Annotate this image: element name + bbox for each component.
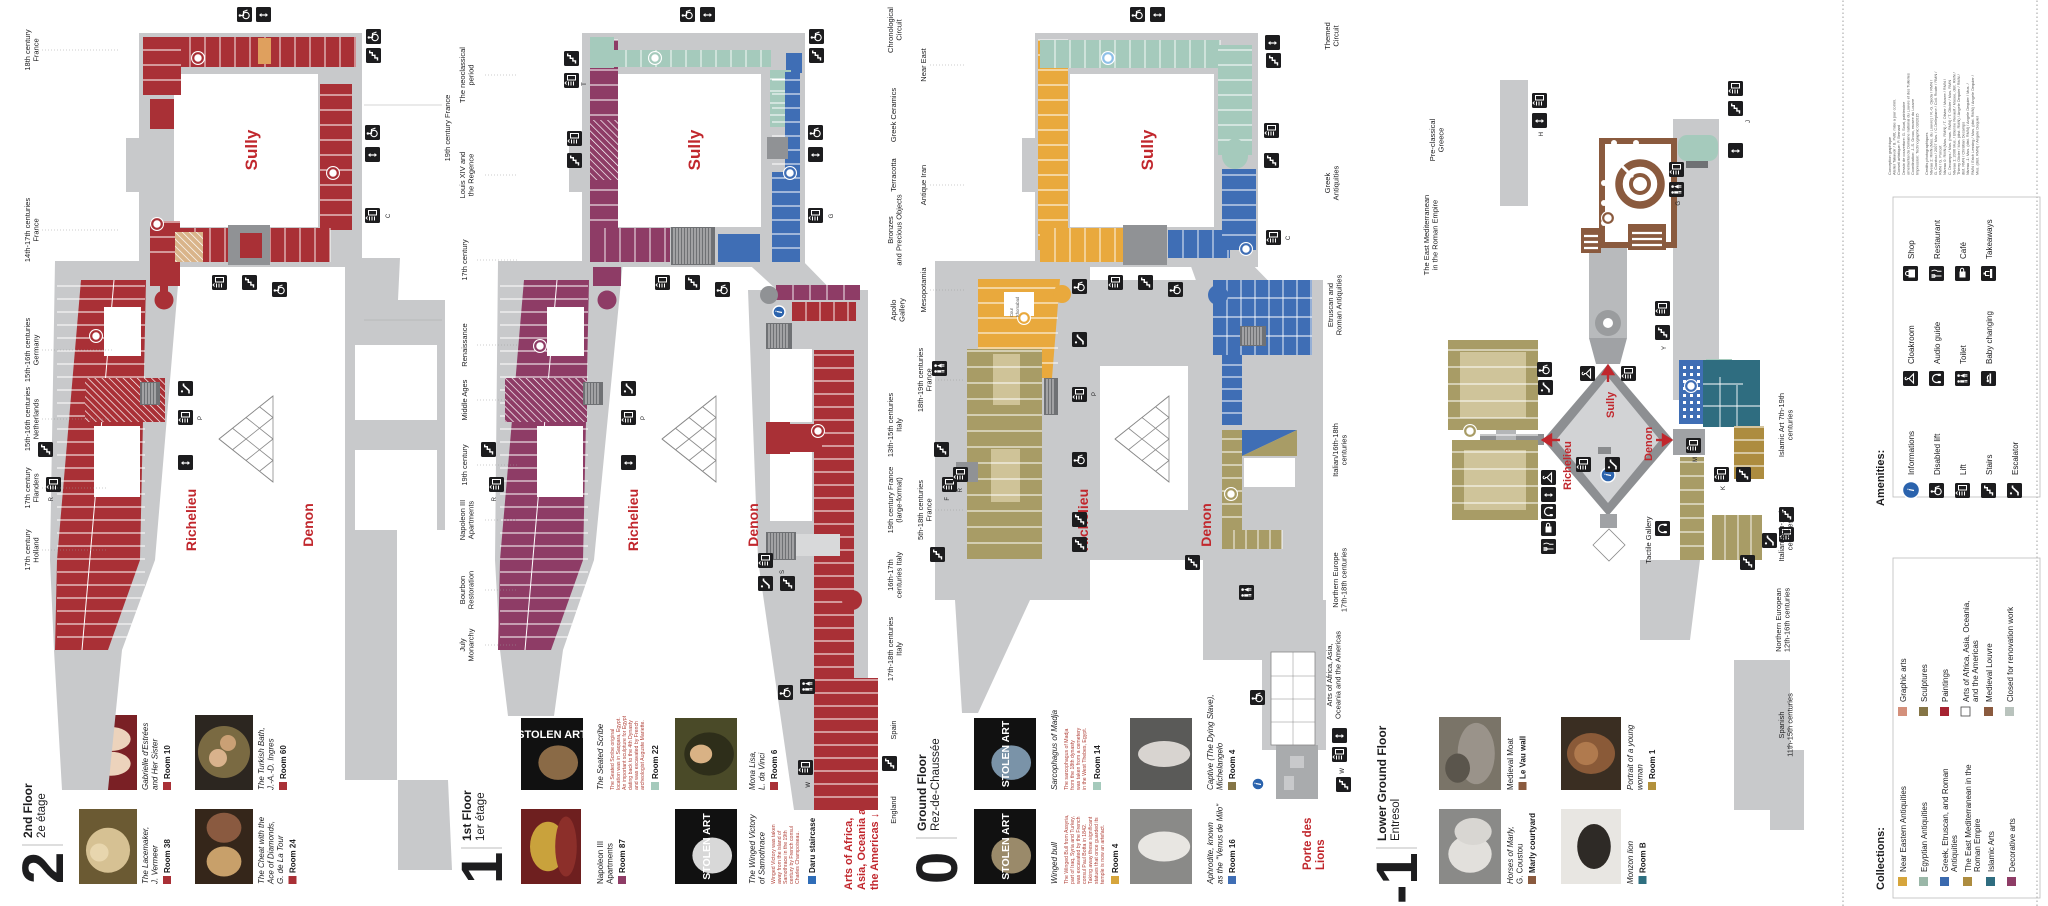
svg-text:Sculptures: Sculptures	[1920, 664, 1929, 702]
svg-text:R: R	[49, 496, 55, 501]
svg-text:Room 16: Room 16	[1228, 839, 1237, 873]
svg-text:R: R	[492, 496, 498, 501]
svg-text:and Her Sister: and Her Sister	[151, 739, 160, 790]
svg-text:Cour: Cour	[1009, 307, 1014, 317]
svg-text:Restoration: Restoration	[467, 571, 476, 609]
svg-text:centuries Italy: centuries Italy	[895, 552, 904, 599]
svg-text:Rez-de-Chaussée: Rez-de-Chaussée	[930, 738, 942, 831]
svg-text:(large-format): (large-format)	[895, 477, 904, 523]
svg-text:Antiquities: Antiquities	[1950, 835, 1959, 872]
svg-text:Marly courtyard: Marly courtyard	[1528, 813, 1537, 873]
svg-text:Richelieu: Richelieu	[625, 489, 641, 551]
svg-text:1: 1	[450, 852, 515, 884]
svg-text:Toilet: Toilet	[1959, 345, 1968, 364]
svg-text:Spain: Spain	[889, 720, 898, 739]
svg-text:Daru staircase: Daru staircase	[808, 817, 817, 873]
svg-text:Entresol: Entresol	[1390, 799, 1402, 841]
svg-text:Near East: Near East	[919, 47, 928, 81]
svg-text:as the "Venus de Milo": as the "Venus de Milo"	[1216, 803, 1225, 884]
svg-text:Closed for renovation work: Closed for renovation work	[2006, 606, 2015, 702]
svg-text:Amenities:: Amenities:	[1875, 450, 1887, 506]
svg-text:J.-A.-D. Ingres: J.-A.-D. Ingres	[267, 738, 276, 791]
svg-text:Room 24: Room 24	[289, 839, 298, 873]
svg-text:J. Vermeer: J. Vermeer	[151, 845, 160, 885]
svg-text:Room 10: Room 10	[163, 745, 172, 779]
svg-text:STOLEN ART: STOLEN ART	[1000, 720, 1012, 787]
svg-text:P: P	[641, 416, 647, 420]
svg-text:Monzon lion: Monzon lion	[1626, 840, 1635, 884]
svg-text:F: F	[945, 497, 951, 501]
svg-text:Greek Ceramics: Greek Ceramics	[889, 88, 898, 142]
svg-text:Charles Champoiseau.: Charles Champoiseau.	[795, 831, 801, 884]
svg-text:Ground Floor: Ground Floor	[915, 754, 929, 831]
svg-text:P: P	[1092, 392, 1098, 396]
svg-text:Sully: Sully	[1138, 129, 1157, 170]
svg-text:M: M	[1693, 457, 1699, 462]
svg-text:Mona Lisa,: Mona Lisa,	[748, 751, 757, 790]
svg-text:The East Mediterranean in the: The East Mediterranean in the	[1964, 764, 1973, 872]
svg-text:11th-15th centuries: 11th-15th centuries	[1786, 693, 1795, 757]
svg-text:Room 87: Room 87	[618, 839, 627, 873]
svg-text:K: K	[1721, 486, 1727, 490]
svg-text:S: S	[780, 570, 786, 574]
svg-text:Room B: Room B	[1639, 842, 1648, 873]
svg-text:and Precious Objects: and Precious Objects	[895, 194, 904, 266]
svg-text:Audio guide: Audio guide	[1933, 321, 1942, 364]
svg-text:Flanders: Flanders	[32, 473, 41, 502]
svg-text:Near Eastern Antiquities: Near Eastern Antiquities	[1899, 786, 1908, 872]
svg-text:1st Floor: 1st Floor	[460, 790, 474, 841]
svg-text:19th century France: 19th century France	[443, 95, 452, 162]
svg-text:Le Vau wall: Le Vau wall	[1519, 736, 1528, 779]
svg-text:Baby changing: Baby changing	[1985, 311, 1994, 364]
svg-text:period: period	[467, 65, 476, 86]
svg-text:Richelieu: Richelieu	[1562, 441, 1574, 490]
svg-text:17th century: 17th century	[460, 239, 469, 281]
svg-text:Captive (The Dying Slave),: Captive (The Dying Slave),	[1206, 694, 1215, 790]
svg-text:Restaurant: Restaurant	[1933, 219, 1942, 259]
svg-text:R: R	[958, 487, 964, 492]
svg-text:Greece: Greece	[1437, 128, 1446, 153]
svg-text:Porte des: Porte des	[1302, 818, 1314, 870]
svg-text:centuries: centuries	[1340, 435, 1349, 466]
svg-text:England: England	[889, 796, 898, 824]
svg-text:2: 2	[11, 852, 76, 884]
svg-text:i: i	[1906, 488, 1916, 491]
svg-text:Oceania and the Americas: Oceania and the Americas	[1334, 631, 1343, 719]
svg-text:C: C	[386, 213, 392, 218]
svg-text:Aphrodite, known: Aphrodite, known	[1206, 822, 1215, 885]
svg-text:of Samothrace: of Samothrace	[758, 831, 767, 884]
svg-text:Ace of Diamonds,: Ace of Diamonds,	[267, 821, 276, 885]
svg-text:H: H	[1539, 132, 1545, 136]
svg-text:Terracotta: Terracotta	[889, 158, 898, 192]
svg-text:Disabled lift: Disabled lift	[1933, 433, 1942, 475]
svg-text:Arts of Africa,: Arts of Africa,	[843, 818, 855, 890]
svg-text:Napoleon III: Napoleon III	[596, 841, 605, 884]
svg-text:Escalator: Escalator	[2011, 441, 2020, 475]
svg-text:Room 4: Room 4	[1228, 749, 1237, 779]
svg-text:The Cheat with the: The Cheat with the	[257, 816, 266, 884]
svg-text:temple is now an artefact.: temple is now an artefact.	[1100, 825, 1106, 884]
svg-text:2e étage: 2e étage	[36, 793, 48, 838]
svg-text:Tactile Gallery: Tactile Gallery	[1644, 516, 1653, 563]
svg-text:Lower Ground Floor: Lower Ground Floor	[1375, 725, 1389, 841]
svg-text:Lions: Lions	[1315, 839, 1327, 870]
svg-text:Y: Y	[1662, 346, 1668, 350]
svg-text:Germany: Germany	[32, 334, 41, 365]
svg-text:Apartments: Apartments	[467, 501, 476, 540]
svg-text:Stairs: Stairs	[1985, 455, 1994, 475]
svg-text:Greek, Etruscan, and Roman: Greek, Etruscan, and Roman	[1941, 768, 1950, 872]
svg-text:Denon: Denon	[1198, 503, 1214, 547]
svg-text:STOLEN ART: STOLEN ART	[517, 729, 587, 741]
svg-text:in the Roman Empire: in the Roman Empire	[1431, 200, 1440, 270]
svg-text:Sully: Sully	[685, 129, 704, 170]
svg-text:Cloakroom: Cloakroom	[1907, 325, 1916, 364]
svg-text:Antiquities: Antiquities	[1332, 165, 1341, 200]
svg-text:Impression: Technographic 03/2: Impression: Technographic 03/2015	[1915, 113, 1920, 175]
svg-text:Gallery: Gallery	[898, 298, 907, 322]
svg-text:Portrait of a young: Portrait of a young	[1626, 724, 1635, 790]
svg-text:Paintings: Paintings	[1941, 669, 1950, 702]
svg-text:-1: -1	[1365, 852, 1430, 904]
svg-text:C: C	[1286, 235, 1292, 240]
svg-text:Denon: Denon	[1643, 427, 1655, 462]
svg-text:Room 22: Room 22	[651, 745, 660, 779]
svg-text:and the Americas: and the Americas	[1971, 640, 1980, 702]
svg-text:19th century: 19th century	[460, 444, 469, 486]
svg-text:G: G	[829, 213, 835, 218]
svg-text:Shop: Shop	[1907, 240, 1916, 259]
svg-text:Lift: Lift	[1959, 464, 1968, 475]
svg-text:L. da Vinci: L. da Vinci	[758, 753, 767, 790]
svg-text:Antique Iran: Antique Iran	[919, 165, 928, 205]
svg-text:Middle Ages: Middle Ages	[460, 379, 469, 420]
svg-text:Richelieu: Richelieu	[183, 489, 199, 551]
svg-text:Circuit: Circuit	[895, 18, 904, 40]
svg-text:STOLEN ART: STOLEN ART	[701, 813, 713, 880]
svg-text:1er étage: 1er étage	[475, 792, 487, 841]
svg-text:The Turkish Bath,: The Turkish Bath,	[257, 727, 266, 790]
svg-text:centuries: centuries	[1786, 520, 1795, 551]
svg-text:Mesopotamia: Mesopotamia	[919, 267, 928, 313]
svg-text:17th-18th centuries: 17th-18th centuries	[1340, 548, 1349, 612]
svg-text:Room 1: Room 1	[1648, 749, 1657, 779]
svg-text:0: 0	[905, 852, 970, 884]
svg-text:woman: woman	[1636, 764, 1645, 790]
svg-text:Collections:: Collections:	[1875, 827, 1887, 890]
svg-text:P: P	[198, 416, 204, 420]
svg-text:The Seated Scribe: The Seated Scribe	[596, 723, 605, 790]
svg-text:Sully: Sully	[242, 129, 261, 170]
svg-text:Medieval Moat: Medieval Moat	[1506, 737, 1515, 790]
svg-text:Roman Antiquities: Roman Antiquities	[1335, 275, 1344, 336]
svg-text:Mus. (dist. RMN) / Angele Dequ: Mus. (dist. RMN) / Angele Dequier	[1974, 115, 1979, 175]
svg-text:G. Coustou: G. Coustou	[1516, 844, 1525, 884]
svg-text:Café: Café	[1959, 242, 1968, 259]
svg-text:12th-16th centuries: 12th-16th centuries	[1783, 588, 1792, 652]
svg-text:The Winged Victory: The Winged Victory	[748, 813, 757, 884]
svg-text:G. de La Tour: G. de La Tour	[276, 835, 285, 884]
svg-text:i: i	[774, 310, 784, 313]
svg-text:Horses of Marly,: Horses of Marly,	[1506, 826, 1515, 884]
svg-text:France: France	[32, 38, 41, 61]
svg-text:Denon: Denon	[300, 503, 316, 547]
svg-text:Sarcophagus of Madja: Sarcophagus of Madja	[1050, 709, 1059, 790]
svg-text:France: France	[32, 218, 41, 241]
svg-text:Room 6: Room 6	[770, 749, 779, 779]
svg-text:Graphic arts: Graphic arts	[1899, 658, 1908, 702]
svg-text:Room 60: Room 60	[279, 745, 288, 779]
svg-text:the Americas ↓: the Americas ↓	[869, 813, 881, 890]
svg-text:Medieval Louvre: Medieval Louvre	[1985, 643, 1994, 702]
svg-text:W: W	[806, 782, 812, 788]
svg-text:archeologist Auguste Mariette.: archeologist Auguste Mariette.	[640, 720, 646, 790]
svg-text:Gabrielle d'Estrées: Gabrielle d'Estrées	[141, 723, 150, 790]
svg-text:in the West Thebes, Egypt.: in the West Thebes, Egypt.	[1082, 728, 1088, 790]
svg-text:The Lacemaker,: The Lacemaker,	[141, 827, 150, 884]
svg-text:Sully: Sully	[1605, 391, 1617, 418]
svg-text:J: J	[1746, 120, 1752, 123]
svg-text:Informations: Informations	[1907, 431, 1916, 475]
svg-text:Decorative arts: Decorative arts	[2008, 818, 2017, 872]
svg-text:Denon: Denon	[745, 503, 761, 547]
svg-text:Egyptian Antiquities: Egyptian Antiquities	[1920, 802, 1929, 872]
svg-text:Monarchy: Monarchy	[467, 628, 476, 661]
svg-text:2nd Floor: 2nd Floor	[21, 783, 35, 838]
svg-text:Islamic Arts: Islamic Arts	[1987, 831, 1996, 872]
svg-text:Italy: Italy	[895, 642, 904, 656]
svg-text:i: i	[1253, 782, 1263, 785]
svg-text:Circuit: Circuit	[1332, 24, 1341, 46]
svg-text:Takeaways: Takeaways	[1985, 219, 1994, 259]
svg-text:Winged bull: Winged bull	[1050, 842, 1059, 884]
svg-text:STOLEN ART: STOLEN ART	[1000, 813, 1012, 880]
svg-text:Italy: Italy	[895, 418, 904, 432]
svg-text:Khorsabad: Khorsabad	[1015, 296, 1020, 317]
svg-text:France: France	[925, 368, 934, 391]
svg-text:G: G	[1676, 201, 1682, 206]
svg-text:Room 14: Room 14	[1093, 745, 1102, 779]
svg-text:Michelangelo: Michelangelo	[1216, 742, 1225, 790]
svg-text:Arts of Africa, Asia, Oceania,: Arts of Africa, Asia, Oceania,	[1962, 601, 1971, 702]
svg-text:Roman Empire: Roman Empire	[1973, 818, 1982, 872]
svg-text:centuries: centuries	[1786, 410, 1795, 441]
svg-text:the Regence: the Regence	[467, 154, 476, 197]
svg-text:Room 4: Room 4	[1111, 843, 1120, 873]
svg-text:Netherlands: Netherlands	[32, 399, 41, 440]
svg-text:Room 38: Room 38	[163, 839, 172, 873]
svg-text:W: W	[1340, 768, 1346, 774]
svg-text:Apartments: Apartments	[606, 843, 615, 884]
svg-text:France: France	[925, 498, 934, 521]
svg-text:Renaissance: Renaissance	[460, 323, 469, 366]
svg-text:i: i	[1603, 473, 1613, 476]
svg-text:T: T	[582, 82, 588, 86]
svg-text:Holland: Holland	[32, 537, 41, 562]
